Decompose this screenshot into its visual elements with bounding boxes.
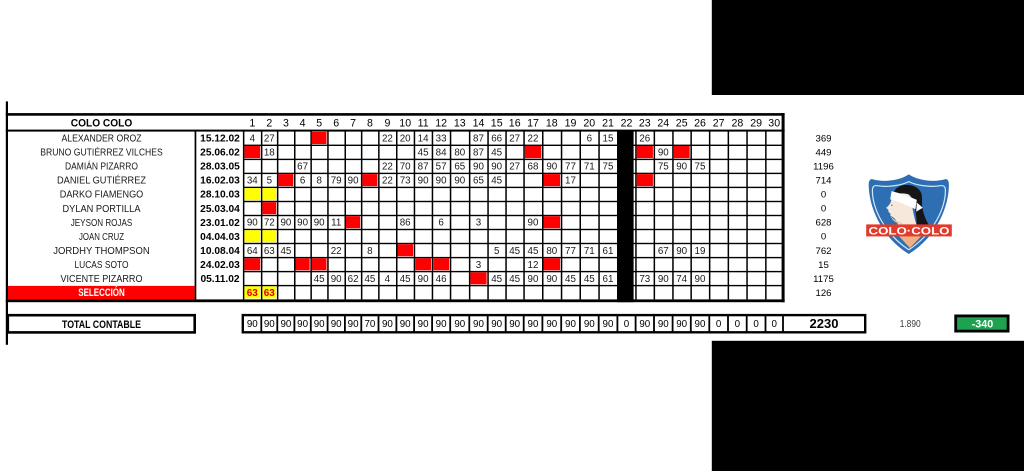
svg-text:77: 77	[565, 162, 576, 173]
svg-text:12: 12	[528, 260, 539, 271]
svg-text:71: 71	[584, 162, 595, 173]
svg-text:90: 90	[546, 319, 557, 330]
svg-text:70: 70	[400, 162, 411, 173]
svg-text:714: 714	[815, 176, 832, 187]
svg-text:90: 90	[695, 274, 706, 285]
svg-text:73: 73	[400, 176, 411, 187]
svg-text:27: 27	[509, 162, 520, 173]
svg-text:45: 45	[584, 274, 595, 285]
svg-text:90: 90	[436, 319, 447, 330]
svg-text:3: 3	[283, 117, 289, 129]
svg-text:90: 90	[473, 162, 484, 173]
svg-text:80: 80	[454, 148, 465, 159]
svg-text:3: 3	[476, 218, 482, 229]
svg-text:86: 86	[400, 218, 411, 229]
svg-text:90: 90	[297, 218, 308, 229]
svg-text:45: 45	[509, 274, 520, 285]
svg-text:67: 67	[658, 246, 669, 257]
svg-text:7: 7	[350, 117, 356, 129]
svg-text:90: 90	[418, 319, 429, 330]
svg-text:90: 90	[247, 218, 258, 229]
svg-text:90: 90	[528, 274, 539, 285]
svg-text:JEYSON ROJAS: JEYSON ROJAS	[71, 218, 133, 229]
svg-text:6: 6	[438, 218, 444, 229]
svg-text:90: 90	[528, 218, 539, 229]
svg-text:8: 8	[316, 176, 322, 187]
svg-text:64: 64	[247, 246, 258, 257]
svg-text:25: 25	[676, 117, 688, 129]
svg-text:25.06.02: 25.06.02	[200, 148, 240, 159]
svg-text:22: 22	[621, 117, 633, 129]
svg-text:28: 28	[732, 117, 744, 129]
svg-text:1175: 1175	[813, 274, 834, 285]
svg-text:5: 5	[494, 246, 500, 257]
svg-text:COLO·COLO: COLO·COLO	[869, 225, 950, 237]
svg-text:90: 90	[454, 176, 465, 187]
svg-text:90: 90	[348, 319, 359, 330]
svg-text:11: 11	[331, 218, 341, 229]
svg-text:33: 33	[436, 134, 447, 145]
svg-text:15: 15	[491, 117, 503, 129]
svg-text:90: 90	[348, 176, 359, 187]
svg-text:73: 73	[639, 274, 650, 285]
svg-text:12: 12	[435, 117, 447, 129]
svg-text:90: 90	[314, 319, 325, 330]
svg-text:VICENTE PIZARRO: VICENTE PIZARRO	[61, 274, 143, 285]
svg-text:22: 22	[528, 134, 539, 145]
svg-text:8: 8	[367, 246, 373, 257]
svg-text:90: 90	[676, 162, 687, 173]
svg-text:5: 5	[267, 176, 273, 187]
svg-text:25.03.04: 25.03.04	[200, 204, 240, 215]
svg-text:75: 75	[603, 162, 614, 173]
svg-text:90: 90	[546, 162, 557, 173]
svg-text:72: 72	[264, 218, 275, 229]
svg-text:DARKO FIAMENGO: DARKO FIAMENGO	[60, 190, 144, 201]
svg-text:90: 90	[658, 274, 669, 285]
svg-text:1.890: 1.890	[900, 319, 921, 330]
svg-text:13: 13	[454, 117, 466, 129]
svg-text:90: 90	[584, 319, 595, 330]
svg-text:15: 15	[818, 260, 829, 271]
svg-text:87: 87	[473, 134, 484, 145]
svg-text:24: 24	[657, 117, 669, 129]
svg-text:45: 45	[418, 148, 429, 159]
svg-text:26: 26	[639, 134, 650, 145]
svg-text:45: 45	[509, 246, 520, 257]
svg-text:90: 90	[473, 319, 484, 330]
svg-text:46: 46	[436, 274, 447, 285]
svg-text:22: 22	[382, 176, 393, 187]
svg-text:DAMIÁN PIZARRO: DAMIÁN PIZARRO	[65, 160, 138, 173]
svg-text:45: 45	[314, 274, 325, 285]
svg-text:LUCAS SOTO: LUCAS SOTO	[75, 260, 129, 271]
svg-text:84: 84	[436, 148, 447, 159]
svg-text:34: 34	[247, 176, 258, 187]
svg-text:21: 21	[602, 117, 614, 129]
svg-text:90: 90	[331, 274, 342, 285]
svg-text:61: 61	[603, 246, 614, 257]
svg-text:45: 45	[528, 246, 539, 257]
svg-text:26: 26	[694, 117, 706, 129]
svg-text:90: 90	[314, 218, 325, 229]
svg-text:-340: -340	[972, 319, 994, 331]
svg-text:45: 45	[491, 176, 502, 187]
svg-text:90: 90	[418, 274, 429, 285]
svg-text:20: 20	[400, 134, 411, 145]
svg-text:65: 65	[473, 176, 484, 187]
svg-text:90: 90	[400, 319, 411, 330]
svg-text:80: 80	[546, 246, 557, 257]
svg-text:1196: 1196	[813, 162, 834, 173]
svg-text:67: 67	[297, 162, 308, 173]
svg-text:126: 126	[815, 288, 831, 299]
svg-text:1: 1	[249, 117, 255, 129]
svg-text:90: 90	[264, 319, 275, 330]
svg-text:90: 90	[280, 218, 291, 229]
svg-text:449: 449	[815, 148, 831, 159]
svg-text:6: 6	[333, 117, 339, 129]
svg-text:6: 6	[587, 134, 593, 145]
svg-text:0: 0	[821, 190, 826, 201]
svg-text:90: 90	[528, 319, 539, 330]
svg-text:90: 90	[331, 319, 342, 330]
svg-text:90: 90	[676, 319, 687, 330]
svg-text:17: 17	[527, 117, 539, 129]
svg-text:6: 6	[300, 176, 306, 187]
svg-text:77: 77	[565, 246, 576, 257]
svg-text:15.12.02: 15.12.02	[200, 134, 240, 145]
svg-text:TOTAL CONTABLE: TOTAL CONTABLE	[62, 319, 141, 331]
svg-text:65: 65	[454, 162, 465, 173]
svg-text:JORDHY THOMPSON: JORDHY THOMPSON	[53, 246, 150, 257]
svg-text:90: 90	[695, 319, 706, 330]
svg-text:0: 0	[771, 319, 777, 330]
svg-text:90: 90	[658, 148, 669, 159]
svg-text:11: 11	[418, 117, 429, 129]
svg-text:90: 90	[546, 274, 557, 285]
svg-text:20: 20	[583, 117, 595, 129]
svg-text:90: 90	[565, 319, 576, 330]
svg-text:18: 18	[264, 148, 275, 159]
svg-text:27: 27	[713, 117, 725, 129]
svg-text:BRUNO GUTIÉRREZ VILCHES: BRUNO GUTIÉRREZ VILCHES	[40, 146, 163, 159]
svg-text:ALEXANDER OROZ: ALEXANDER OROZ	[62, 134, 142, 145]
svg-text:74: 74	[676, 274, 687, 285]
svg-text:4: 4	[250, 134, 256, 145]
svg-text:22: 22	[382, 162, 393, 173]
svg-text:90: 90	[297, 319, 308, 330]
svg-text:3: 3	[476, 260, 482, 271]
svg-text:87: 87	[473, 148, 484, 159]
svg-text:628: 628	[815, 218, 831, 229]
svg-text:90: 90	[603, 319, 614, 330]
svg-text:COLO COLO: COLO COLO	[71, 118, 133, 130]
svg-text:90: 90	[436, 176, 447, 187]
svg-text:17: 17	[565, 176, 576, 187]
svg-text:90: 90	[491, 162, 502, 173]
svg-text:63: 63	[247, 288, 258, 299]
svg-text:27: 27	[509, 134, 520, 145]
svg-text:DYLAN PORTILLA: DYLAN PORTILLA	[63, 204, 141, 215]
svg-text:79: 79	[331, 176, 342, 187]
svg-text:23: 23	[639, 117, 651, 129]
svg-text:762: 762	[815, 246, 831, 257]
svg-text:0: 0	[821, 232, 826, 243]
svg-text:22: 22	[331, 246, 342, 257]
svg-text:23.01.02: 23.01.02	[200, 218, 240, 229]
svg-text:87: 87	[418, 162, 429, 173]
svg-text:62: 62	[348, 274, 359, 285]
svg-text:16.02.03: 16.02.03	[200, 176, 240, 187]
svg-text:22: 22	[382, 134, 393, 145]
svg-text:18: 18	[546, 117, 558, 129]
svg-text:14: 14	[418, 134, 429, 145]
svg-text:DANIEL GUTIÉRREZ: DANIEL GUTIÉRREZ	[57, 174, 146, 187]
svg-text:10: 10	[399, 117, 411, 129]
svg-text:30: 30	[768, 117, 780, 129]
svg-text:28.10.03: 28.10.03	[200, 190, 240, 201]
svg-text:19: 19	[565, 117, 577, 129]
svg-text:04.04.03: 04.04.03	[200, 232, 240, 243]
svg-text:0: 0	[624, 319, 630, 330]
svg-text:90: 90	[509, 319, 520, 330]
svg-text:2: 2	[266, 117, 272, 129]
svg-text:5: 5	[316, 117, 322, 129]
svg-text:90: 90	[676, 246, 687, 257]
svg-text:0: 0	[716, 319, 722, 330]
svg-text:15: 15	[603, 134, 614, 145]
svg-text:29: 29	[750, 117, 762, 129]
svg-text:90: 90	[382, 319, 393, 330]
svg-text:10.08.04: 10.08.04	[200, 246, 240, 257]
svg-text:90: 90	[658, 319, 669, 330]
svg-text:90: 90	[491, 319, 502, 330]
svg-text:70: 70	[364, 319, 375, 330]
svg-text:66: 66	[491, 134, 502, 145]
svg-text:14: 14	[473, 117, 485, 129]
svg-text:57: 57	[436, 162, 447, 173]
svg-text:45: 45	[565, 274, 576, 285]
svg-text:61: 61	[603, 274, 614, 285]
svg-text:2230: 2230	[810, 316, 839, 331]
svg-text:SELECCIÓN: SELECCIÓN	[78, 286, 125, 299]
svg-text:4: 4	[385, 274, 391, 285]
svg-text:27: 27	[264, 134, 275, 145]
svg-text:45: 45	[491, 274, 502, 285]
svg-text:63: 63	[264, 246, 275, 257]
svg-text:63: 63	[264, 288, 275, 299]
svg-text:90: 90	[454, 319, 465, 330]
svg-text:90: 90	[280, 319, 291, 330]
svg-text:05.11.02: 05.11.02	[200, 274, 239, 285]
svg-text:45: 45	[400, 274, 411, 285]
svg-text:24.02.03: 24.02.03	[200, 260, 240, 271]
svg-text:16: 16	[509, 117, 521, 129]
svg-text:71: 71	[584, 246, 595, 257]
svg-text:8: 8	[367, 117, 373, 129]
svg-text:45: 45	[491, 148, 502, 159]
svg-text:19: 19	[695, 246, 706, 257]
svg-text:28.03.05: 28.03.05	[200, 162, 240, 173]
svg-text:JOAN CRUZ: JOAN CRUZ	[79, 232, 124, 243]
svg-text:75: 75	[695, 162, 706, 173]
svg-text:90: 90	[639, 319, 650, 330]
svg-text:4: 4	[300, 117, 306, 129]
svg-text:90: 90	[418, 176, 429, 187]
svg-text:90: 90	[247, 319, 258, 330]
svg-text:75: 75	[658, 162, 669, 173]
svg-text:45: 45	[364, 274, 375, 285]
svg-text:45: 45	[280, 246, 291, 257]
svg-text:0: 0	[735, 319, 741, 330]
svg-text:68: 68	[528, 162, 539, 173]
svg-text:9: 9	[384, 117, 390, 129]
svg-text:0: 0	[821, 204, 826, 215]
svg-text:0: 0	[753, 319, 759, 330]
svg-text:369: 369	[815, 134, 831, 145]
